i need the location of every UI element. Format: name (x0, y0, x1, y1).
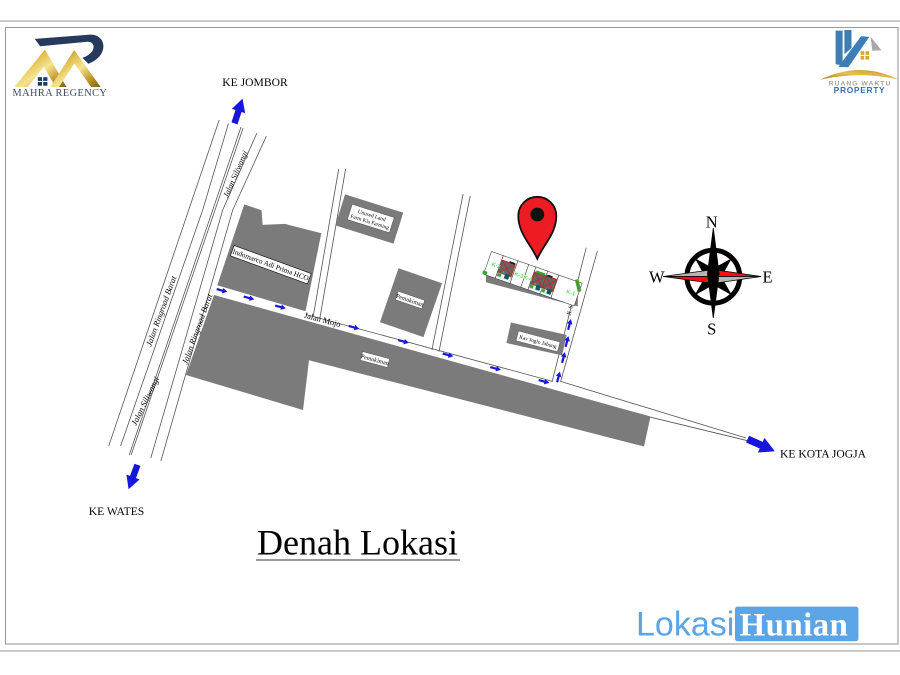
svg-text:KE WATES: KE WATES (89, 505, 145, 518)
svg-text:MAHRA REGENCY: MAHRA REGENCY (13, 88, 108, 99)
svg-text:E: E (763, 268, 773, 287)
svg-text:Lokasi: Lokasi (636, 606, 734, 644)
svg-text:S: S (707, 320, 716, 339)
svg-text:PROPERTY: PROPERTY (834, 85, 886, 95)
svg-text:KE JOMBOR: KE JOMBOR (222, 76, 288, 89)
svg-text:W: W (649, 268, 665, 287)
svg-text:KE KOTA JOGJA: KE KOTA JOGJA (780, 448, 867, 461)
svg-text:N: N (706, 213, 718, 232)
svg-text:Denah Lokasi: Denah Lokasi (257, 523, 458, 563)
svg-text:Hunian: Hunian (740, 608, 849, 644)
